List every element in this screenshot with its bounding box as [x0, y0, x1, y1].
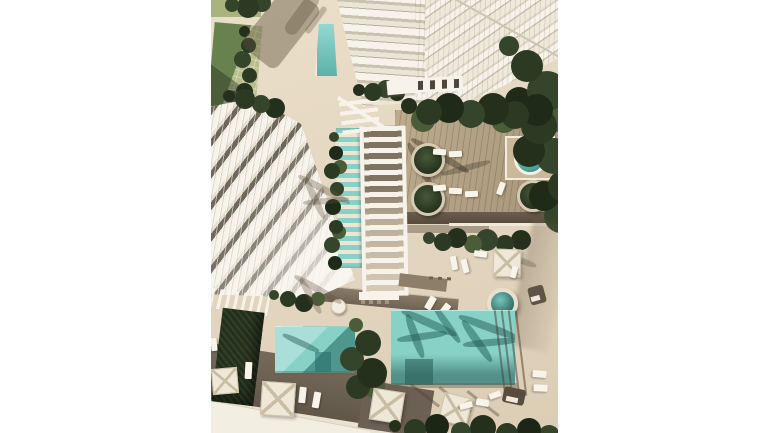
lounger — [450, 256, 458, 271]
render-canvas — [0, 0, 770, 433]
terrace-railing — [386, 79, 415, 95]
hedge-strip — [389, 420, 401, 432]
lounger — [245, 362, 253, 379]
lounger — [532, 370, 547, 378]
round-planter — [517, 180, 549, 212]
pool-edge-shadow — [275, 371, 357, 375]
tree-cluster — [499, 36, 519, 56]
parasol — [369, 388, 406, 425]
stepping-stones — [361, 300, 393, 304]
lounger — [474, 250, 488, 258]
parasol — [260, 381, 296, 417]
shrub-row — [423, 232, 435, 244]
tree-cluster — [349, 318, 363, 332]
hedge-row — [223, 90, 235, 102]
lounger — [211, 338, 218, 351]
tree-band — [401, 98, 417, 114]
parasol — [438, 392, 473, 427]
lounger — [533, 384, 547, 391]
deck-hot-tub — [514, 143, 546, 175]
deck-shadow — [397, 225, 489, 233]
hedge-box — [353, 84, 365, 96]
planter-boxes — [413, 76, 464, 94]
small-pool-steps — [315, 352, 331, 372]
pergola-walkway — [360, 126, 409, 297]
parasol — [493, 249, 522, 278]
pergola-end — [359, 292, 399, 300]
lounger — [475, 398, 489, 407]
aerial-render-scene — [211, 0, 558, 433]
lounger — [449, 188, 462, 195]
lounger — [488, 390, 501, 400]
lounger — [460, 258, 469, 273]
rooftop-plunge-pool — [315, 24, 337, 76]
parasol — [211, 367, 239, 395]
shrub-cluster — [269, 290, 279, 300]
lounger — [433, 184, 446, 191]
lounger — [433, 149, 446, 156]
lounger — [465, 191, 478, 197]
shrub-column — [329, 132, 339, 142]
cabana — [502, 386, 527, 406]
lounger — [449, 151, 462, 158]
